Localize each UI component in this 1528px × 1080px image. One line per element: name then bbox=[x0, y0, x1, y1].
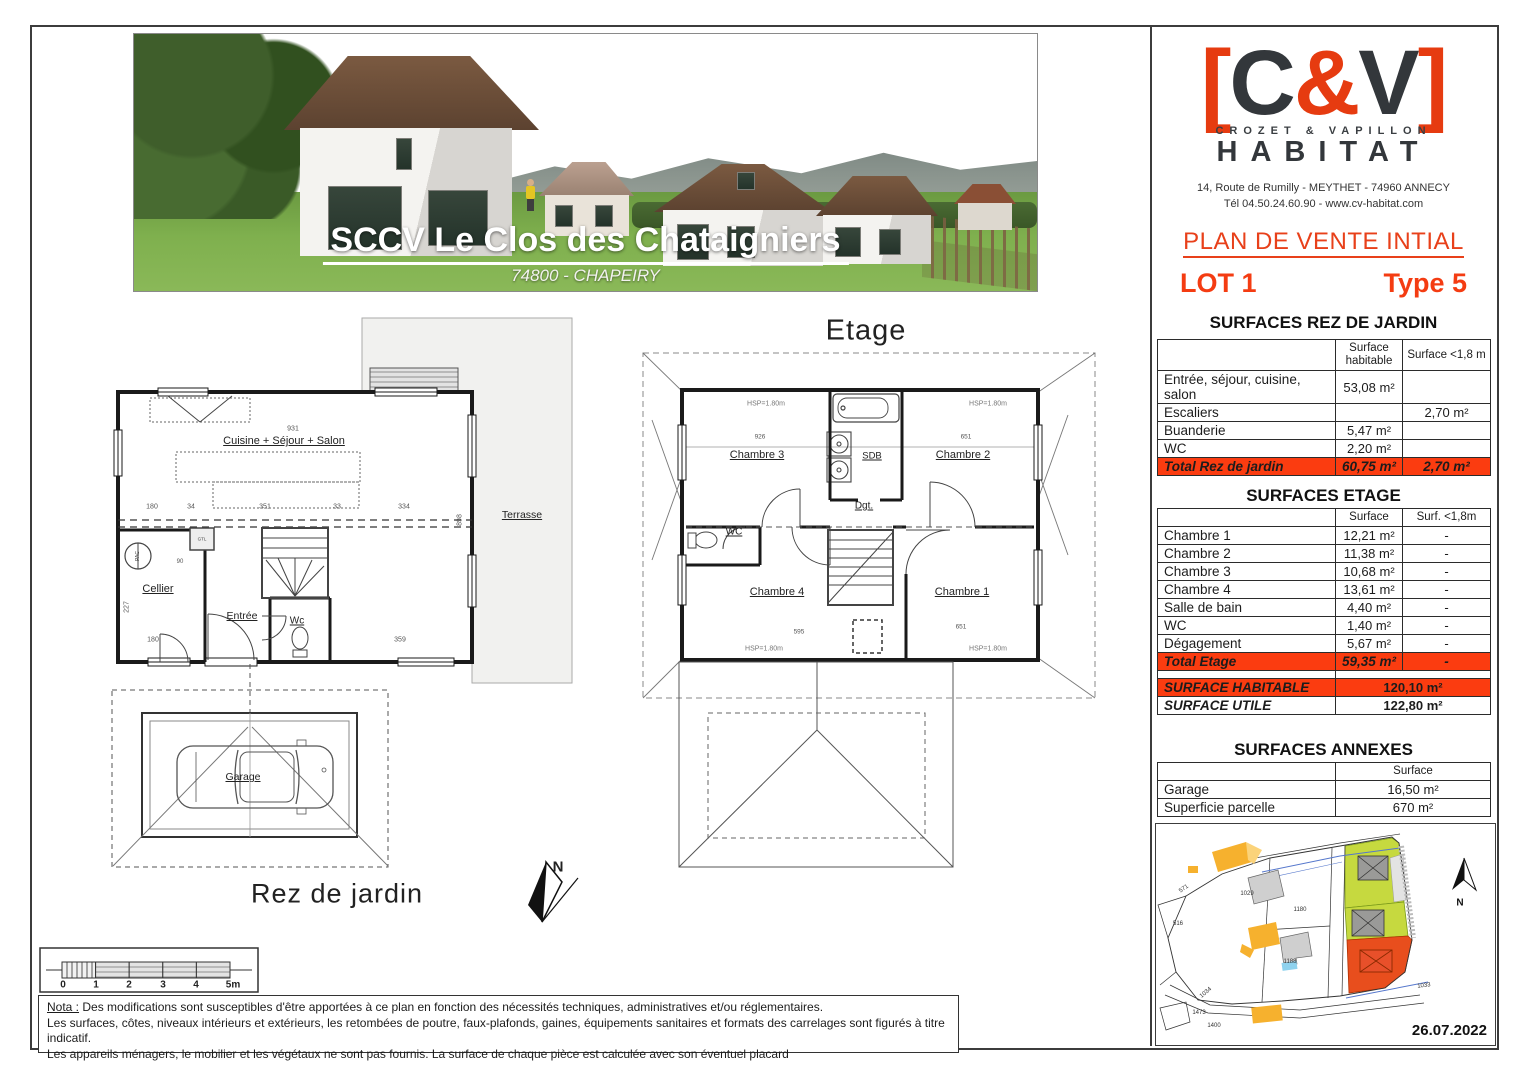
dim-label: 351 bbox=[259, 504, 271, 511]
dim-label: 334 bbox=[398, 504, 410, 511]
row-lt18: - bbox=[1403, 581, 1491, 599]
nota-box: Nota : Des modifications sont susceptibl… bbox=[38, 995, 959, 1053]
table-row: Chambre 4 13,61 m² - bbox=[1158, 581, 1491, 599]
header-surface: Surface bbox=[1336, 509, 1403, 527]
person bbox=[527, 199, 534, 211]
row-surface: 4,40 m² bbox=[1336, 599, 1403, 617]
spacer-cell bbox=[1336, 671, 1491, 679]
surfaces-rdj-table: Surface habitable Surface <1,8 m Entrée,… bbox=[1157, 339, 1491, 476]
hsp-label: HSP=1.80m bbox=[969, 401, 1007, 408]
table-row: Chambre 1 12,21 m² - bbox=[1158, 527, 1491, 545]
logo-letters: [C&V] bbox=[1150, 35, 1497, 131]
summary-label: SURFACE UTILE bbox=[1158, 697, 1336, 715]
row-label: Chambre 3 bbox=[1158, 563, 1336, 581]
dim-label: 359 bbox=[394, 637, 406, 644]
table-row: Buanderie 5,47 m² bbox=[1158, 422, 1491, 440]
row-surface: 10,68 m² bbox=[1336, 563, 1403, 581]
plan-de-vente-sheet: SCCV Le Clos des Chataigniers 74800 - CH… bbox=[0, 0, 1528, 1080]
surfaces-annexes-table: Surface Garage 16,50 m² Superficie parce… bbox=[1157, 762, 1491, 817]
row-surface: 2,20 m² bbox=[1336, 440, 1403, 458]
info-panel: [C&V] CROZET & VAPILLON HABITAT 14, Rout… bbox=[1150, 25, 1497, 1046]
scale-tick: 3 bbox=[160, 980, 166, 991]
room-label-degagement: Dgt. bbox=[855, 501, 873, 512]
row-surface: 13,61 m² bbox=[1336, 581, 1403, 599]
row-lt18: - bbox=[1403, 617, 1491, 635]
row-lt18 bbox=[1403, 440, 1491, 458]
house-walls bbox=[958, 203, 1012, 230]
row-value: 16,50 m² bbox=[1336, 781, 1491, 799]
company-address: 14, Route de Rumilly - MEYTHET - 74960 A… bbox=[1150, 180, 1497, 212]
header-surface: Surface bbox=[1336, 763, 1491, 781]
person bbox=[526, 186, 535, 199]
table-row: WC 2,20 m² bbox=[1158, 440, 1491, 458]
row-surface: 5,47 m² bbox=[1336, 422, 1403, 440]
north-label: N bbox=[553, 859, 564, 876]
room-label-entree: Entrée bbox=[227, 610, 258, 622]
logo-ampersand: & bbox=[1294, 32, 1358, 134]
row-lt18 bbox=[1403, 371, 1491, 404]
scale-tick: 4 bbox=[193, 980, 199, 991]
site-plan-box: 26.07.2022 bbox=[1155, 823, 1496, 1046]
etage-plan-title: Etage bbox=[826, 315, 907, 348]
row-label: Escaliers bbox=[1158, 404, 1336, 422]
gtl-label: GTL bbox=[198, 537, 207, 542]
room-label-chambre3: Chambre 3 bbox=[730, 449, 784, 461]
table-row: Chambre 2 11,38 m² - bbox=[1158, 545, 1491, 563]
hip-roof bbox=[284, 56, 539, 130]
table-header-row: Surface bbox=[1158, 763, 1491, 781]
surface-habitable-row: SURFACE HABITABLE 120,10 m² bbox=[1158, 679, 1491, 697]
total-surface: 60,75 m² bbox=[1336, 458, 1403, 476]
window bbox=[879, 229, 901, 255]
nota-line-3: Les appareils ménagers, le mobilier et l… bbox=[47, 1047, 950, 1063]
total-lt18: - bbox=[1403, 653, 1491, 671]
row-label: WC bbox=[1158, 617, 1336, 635]
hsp-label: HSP=1.80m bbox=[969, 646, 1007, 653]
table-row: Dégagement 5,67 m² - bbox=[1158, 635, 1491, 653]
row-surface: 1,40 m² bbox=[1336, 617, 1403, 635]
row-lt18: - bbox=[1403, 599, 1491, 617]
row-surface: 11,38 m² bbox=[1336, 545, 1403, 563]
table-row: Superficie parcelle 670 m² bbox=[1158, 799, 1491, 817]
spacer-row bbox=[1158, 671, 1491, 679]
table-row: Garage 16,50 m² bbox=[1158, 781, 1491, 799]
person bbox=[527, 179, 534, 186]
contact-line: Tél 04.50.24.60.90 - www.cv-habitat.com bbox=[1150, 196, 1497, 212]
dim-label: 34 bbox=[187, 504, 195, 511]
company-logo: [C&V] CROZET & VAPILLON HABITAT 14, Rout… bbox=[1150, 35, 1497, 212]
nota-line-1: Nota : Des modifications sont susceptibl… bbox=[47, 1000, 950, 1016]
total-lt18: 2,70 m² bbox=[1403, 458, 1491, 476]
dim-label: 651 bbox=[956, 624, 967, 631]
hip-roof bbox=[816, 176, 938, 216]
table-row: Escaliers 2,70 m² bbox=[1158, 404, 1491, 422]
table-header-row: Surface Surf. <1,8m bbox=[1158, 509, 1491, 527]
pac-label: PAC bbox=[135, 551, 141, 561]
parcel-number: 1029 bbox=[1240, 891, 1253, 897]
lot-type: Type 5 bbox=[1383, 268, 1467, 299]
window bbox=[737, 172, 755, 190]
document-title-text: PLAN DE VENTE INTIAL bbox=[1183, 228, 1464, 258]
dim-label: 33 bbox=[333, 504, 341, 511]
row-lt18 bbox=[1403, 422, 1491, 440]
project-photo-banner: SCCV Le Clos des Chataigniers 74800 - CH… bbox=[133, 33, 1038, 292]
scale-tick: 5m bbox=[226, 980, 240, 991]
row-label: Salle de bain bbox=[1158, 599, 1336, 617]
table-row: Chambre 3 10,68 m² - bbox=[1158, 563, 1491, 581]
dim-label: 90 bbox=[177, 559, 184, 565]
etage-table-heading: SURFACES ETAGE bbox=[1150, 486, 1497, 506]
window bbox=[396, 138, 412, 170]
dim-label: 898 bbox=[457, 514, 464, 526]
spacer-cell bbox=[1158, 671, 1336, 679]
row-surface: 53,08 m² bbox=[1336, 371, 1403, 404]
room-label-garage: Garage bbox=[225, 771, 260, 783]
logo-letter-v: V bbox=[1358, 32, 1417, 134]
header-surface: Surface habitable bbox=[1336, 340, 1403, 371]
room-label-chambre4: Chambre 4 bbox=[750, 586, 804, 598]
parcel-number: 1188 bbox=[1284, 959, 1297, 965]
lot-type-row: LOT 1 Type 5 bbox=[1150, 268, 1497, 299]
scale-tick: 2 bbox=[126, 980, 132, 991]
dim-label: 595 bbox=[794, 629, 805, 636]
header-empty bbox=[1158, 509, 1336, 527]
row-lt18: - bbox=[1403, 563, 1491, 581]
summary-value: 122,80 m² bbox=[1336, 697, 1491, 715]
hsp-label: HSP=1.80m bbox=[747, 401, 785, 408]
dim-label: 180 bbox=[146, 504, 158, 511]
hsp-label: HSP=1.80m bbox=[745, 646, 783, 653]
row-lt18: 2,70 m² bbox=[1403, 404, 1491, 422]
row-lt18: - bbox=[1403, 527, 1491, 545]
row-label: Entrée, séjour, cuisine, salon bbox=[1158, 371, 1336, 404]
project-title: SCCV Le Clos des Chataigniers bbox=[322, 221, 848, 265]
total-label: Total Etage bbox=[1158, 653, 1336, 671]
total-row: Total Etage 59,35 m² - bbox=[1158, 653, 1491, 671]
nota-label: Nota : bbox=[47, 1000, 79, 1014]
header-empty bbox=[1158, 763, 1336, 781]
project-location: 74800 - CHAPEIRY bbox=[511, 266, 660, 286]
logo-letter-c: C bbox=[1229, 32, 1293, 134]
row-label: Chambre 1 bbox=[1158, 527, 1336, 545]
nota-text-1: Des modifications sont susceptibles d'êt… bbox=[79, 1000, 823, 1014]
dim-label: 651 bbox=[961, 434, 972, 441]
annexes-table-heading: SURFACES ANNEXES bbox=[1150, 740, 1497, 760]
room-label-terrasse: Terrasse bbox=[502, 509, 542, 521]
row-label: Chambre 4 bbox=[1158, 581, 1336, 599]
address-line: 14, Route de Rumilly - MEYTHET - 74960 A… bbox=[1150, 180, 1497, 196]
row-label: Superficie parcelle bbox=[1158, 799, 1336, 817]
summary-value: 120,10 m² bbox=[1336, 679, 1491, 697]
rdj-plan-title: Rez de jardin bbox=[251, 879, 423, 910]
surfaces-etage-table: Surface Surf. <1,8m Chambre 1 12,21 m² -… bbox=[1157, 508, 1491, 715]
plan-date: 26.07.2022 bbox=[1412, 1022, 1487, 1039]
roof bbox=[954, 184, 1016, 204]
room-label-chambre2: Chambre 2 bbox=[936, 449, 990, 461]
row-label: Garage bbox=[1158, 781, 1336, 799]
parcel-number: 516 bbox=[1173, 921, 1183, 927]
roof bbox=[539, 162, 634, 196]
row-label: Dégagement bbox=[1158, 635, 1336, 653]
table-row: WC 1,40 m² - bbox=[1158, 617, 1491, 635]
scale-tick: 0 bbox=[60, 980, 66, 991]
parcel-number: 1180 bbox=[1294, 907, 1307, 913]
row-value: 670 m² bbox=[1336, 799, 1491, 817]
dim-label: 180 bbox=[147, 637, 159, 644]
room-label-wc-rdj: Wc bbox=[290, 616, 304, 627]
header-empty bbox=[1158, 340, 1336, 371]
header-lt18: Surface <1,8 m bbox=[1403, 340, 1491, 371]
logo-bracket-left: [ bbox=[1201, 32, 1230, 134]
header-lt18: Surf. <1,8m bbox=[1403, 509, 1491, 527]
lot-number: LOT 1 bbox=[1180, 268, 1257, 299]
rdj-table-heading: SURFACES REZ DE JARDIN bbox=[1150, 313, 1497, 333]
row-label: Chambre 2 bbox=[1158, 545, 1336, 563]
table-row: Entrée, séjour, cuisine, salon 53,08 m² bbox=[1158, 371, 1491, 404]
dim-label: 227 bbox=[124, 601, 131, 613]
dim-label: 931 bbox=[287, 426, 299, 433]
total-label: Total Rez de jardin bbox=[1158, 458, 1336, 476]
house-render-5 bbox=[954, 184, 1016, 230]
row-label: WC bbox=[1158, 440, 1336, 458]
logo-name: HABITAT bbox=[1150, 137, 1497, 168]
total-row: Total Rez de jardin 60,75 m² 2,70 m² bbox=[1158, 458, 1491, 476]
nota-line-2: Les surfaces, côtes, niveaux intérieurs … bbox=[47, 1016, 950, 1047]
parcel-number: 1473 bbox=[1192, 1010, 1205, 1016]
surface-utile-row: SURFACE UTILE 122,80 m² bbox=[1158, 697, 1491, 715]
row-surface: 5,67 m² bbox=[1336, 635, 1403, 653]
row-lt18: - bbox=[1403, 635, 1491, 653]
scale-tick: 1 bbox=[93, 980, 99, 991]
row-lt18: - bbox=[1403, 545, 1491, 563]
room-label-sdb: SDB bbox=[862, 451, 882, 462]
logo-bracket-right: ] bbox=[1418, 32, 1447, 134]
row-surface bbox=[1336, 404, 1403, 422]
table-header-row: Surface habitable Surface <1,8 m bbox=[1158, 340, 1491, 371]
room-label-chambre1: Chambre 1 bbox=[935, 586, 989, 598]
room-label-cuisine: Cuisine + Séjour + Salon bbox=[223, 435, 345, 447]
total-surface: 59,35 m² bbox=[1336, 653, 1403, 671]
room-label-wc-etage: WC bbox=[726, 527, 743, 538]
parcel-number: 1400 bbox=[1207, 1023, 1220, 1029]
room-label-cellier: Cellier bbox=[142, 583, 173, 595]
document-title: PLAN DE VENTE INTIAL bbox=[1150, 228, 1497, 256]
table-row: Salle de bain 4,40 m² - bbox=[1158, 599, 1491, 617]
row-label: Buanderie bbox=[1158, 422, 1336, 440]
row-surface: 12,21 m² bbox=[1336, 527, 1403, 545]
dim-label: 926 bbox=[755, 434, 766, 441]
summary-label: SURFACE HABITABLE bbox=[1158, 679, 1336, 697]
map-north-label: N bbox=[1456, 898, 1463, 909]
